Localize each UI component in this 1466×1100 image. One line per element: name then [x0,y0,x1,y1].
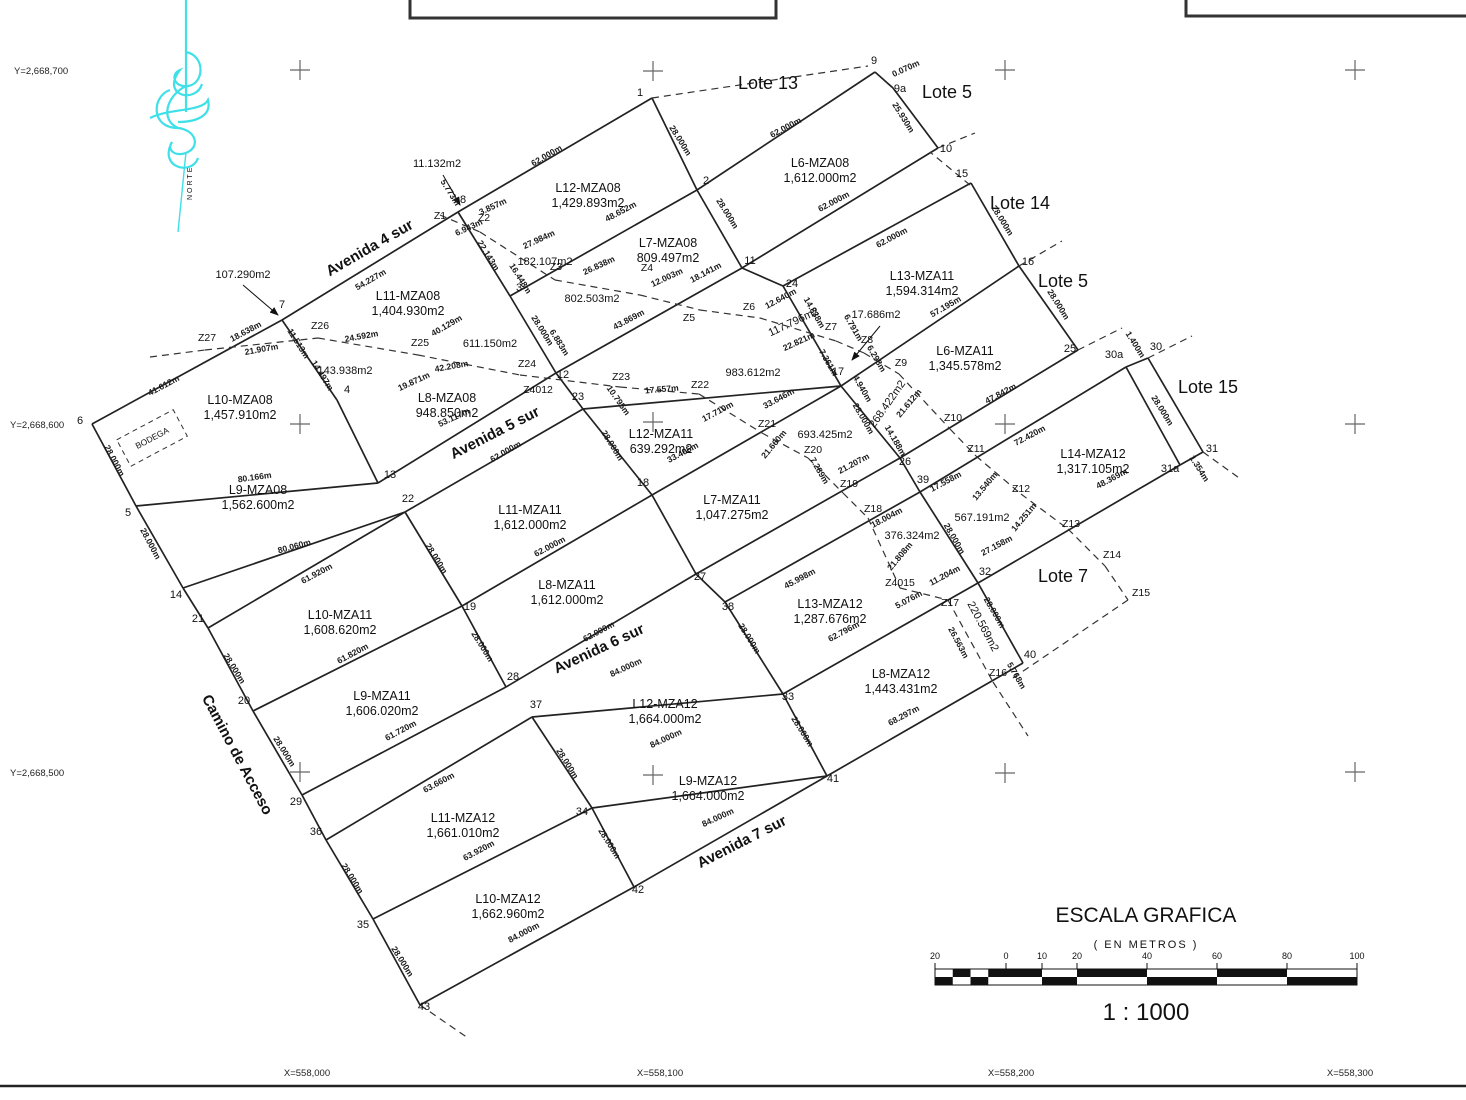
corner-number-label: 43 [418,1001,430,1013]
dimension-label: 25.930m [890,100,917,134]
lot-label: L13-MZA121,287.676m2 [794,597,867,626]
dimension-label: 84.000m [648,726,683,750]
scale-bar-cell [1077,969,1147,977]
corner-number-label: 5 [125,507,131,519]
grid-y-label: Y=2,668,700 [14,66,68,77]
corner-number-label: 37 [530,699,542,711]
lot-label: L8-MZA111,612.000m2 [531,578,604,607]
lot-label: L12-MZA121,664.000m2 [629,697,702,726]
dimension-label: 22.821m [781,329,816,353]
corner-number-label: 14 [170,589,182,601]
area-label: 143.938m2 [317,365,372,377]
lot-label: L7-MZA111,047.275m2 [696,493,769,522]
z-vertex-label: Z2 [478,212,490,224]
scale-tick-label: 100 [1349,951,1364,961]
corner-number-label: 31 [1206,443,1218,455]
corner-number-label: 9 [871,55,877,67]
z-vertex-label: Z22 [691,379,709,391]
dimension-label: 21.660m [759,428,789,461]
scale-bar-cell [1147,977,1217,985]
dimension-label: 47.842m [983,381,1018,406]
north-arrow-icon: NORTE [150,0,209,236]
grid-x-label: X=558,200 [988,1068,1034,1079]
z-vertex-label: Z7 [825,321,837,333]
corner-number-label: 30 [1150,341,1162,353]
corner-number-label: 40 [1024,649,1036,661]
dimension-label: 61.720m [383,718,418,743]
dimension-label: 28.000m [1045,287,1072,321]
area-label: 17.686m2 [852,309,901,321]
corner-number-label: 27 [694,571,706,583]
scale-bar-cell [1287,977,1357,985]
corner-number-label: 15 [956,168,968,180]
dimension-label: 72.420m [1012,423,1047,448]
scale-ratio: 1 : 1000 [1103,999,1190,1026]
scale-bar-cell [971,977,989,985]
corner-number-label: 22 [402,493,414,505]
z-vertex-label: Z11 [967,443,984,455]
z-vertex-label: Z4015 [885,577,915,589]
corner-number-label: 24 [786,278,798,290]
z-vertex-label: Z13 [1062,518,1080,530]
corner-number-label: 9a [894,83,907,95]
dimension-label: 24.592m [344,328,380,344]
scale-tick-label: 60 [1212,951,1222,961]
z-vertex-label: Z1 [434,210,446,222]
parcel-boundary-line [875,72,893,88]
scale-bar-cell [1217,969,1287,977]
dimension-label: 45.998m [782,566,817,591]
parcel-boundary-line [742,268,783,286]
drawing-sheet: NORTE BODEGA 41.612m28.000m18.638m11.513… [0,0,1466,1100]
z-vertex-label: Z21 [758,418,776,430]
title-box-left [410,0,776,18]
z-vertex-label: Z18 [864,503,882,515]
dimension-label: 41.612m [146,373,181,398]
corner-number-label: 8 [460,194,466,206]
z-vertex-label: Z15 [1132,587,1150,599]
scale-tick-label: 0 [1003,951,1008,961]
grid-cross-icon [995,763,1015,783]
z-vertex-label: Z10 [944,412,962,424]
neighbor-lote-label: Lote 5 [1038,271,1088,291]
corner-number-label: 41 [827,773,839,785]
dimension-label: 19.871m [396,369,431,393]
z-vertex-label: Z25 [411,337,429,349]
lot-label: L11-MZA121,661.010m2 [427,811,500,840]
lot-label: L9-MZA081,562.600m2 [222,483,295,512]
dimension-label: 28.000m [221,651,248,685]
z-vertex-label: Z5 [683,312,695,324]
bodega-structure: BODEGA [117,410,188,467]
corner-number-label: 17 [832,366,844,378]
dimension-label: 21.907m [244,341,280,357]
neighbor-lote-labels: Lote 13Lote 5Lote 14Lote 5Lote 15Lote 7 [738,73,1238,586]
affectation-dashed-line [1105,566,1128,600]
scale-tick-label: 80 [1282,951,1292,961]
dimension-label: 10.795m [605,384,633,418]
scale-tick-label: 10 [1037,951,1047,961]
dimension-label: 11.513m [285,327,311,361]
scale-tick-label: 40 [1142,951,1152,961]
corner-number-label: 34 [576,806,588,818]
neighbor-lote-label: Lote 15 [1178,377,1238,397]
area-label: 611.150m2 [463,338,517,350]
dimension-label: 26.838m [581,253,616,277]
corner-number-label: 11 [744,255,755,267]
lot-label: L7-MZA08809.497m2 [637,236,700,265]
corner-number-label: 7 [279,299,285,311]
corner-number-label: 13 [384,469,396,481]
area-label: 983.612m2 [725,367,780,379]
bodega-label: BODEGA [134,425,171,451]
dimension-label: 80.060m [277,537,313,556]
dimension-label: 7.289m [808,455,831,486]
dimension-label: 33.646m [761,386,796,411]
z-vertex-label: Z17 [941,597,959,609]
parcel-boundary-line [337,400,378,483]
grid-y-label: Y=2,668,500 [10,768,64,779]
area-label: 107.290m2 [215,269,270,281]
corner-number-label: 38 [722,601,734,613]
z-vertex-label: Z9 [895,357,907,369]
dimension-label: 28.000m [667,123,694,157]
scale-bar-cell [1042,977,1077,985]
z-vertex-label: Z8 [861,334,873,346]
grid-cross-icon [995,60,1015,80]
parcel-boundary-line [326,717,532,840]
lot-label: L9-MZA121,664.000m2 [672,774,745,803]
lot-label: L11-MZA081,404.930m2 [372,289,445,318]
dimension-label: 62.000m [529,142,564,168]
corner-number-label: 3 [516,282,522,294]
z-vertex-label: Z12 [1012,483,1030,495]
neighbor-lote-label: Lote 13 [738,73,798,93]
lot-label: L9-MZA111,606.020m2 [346,689,419,718]
corner-number-label: 4 [344,384,350,396]
area-label: 802.503m2 [564,293,619,305]
dimension-label: 84.000m [700,805,735,829]
corner-number-label: 33 [782,691,794,703]
dimension-label: 21.808m [885,540,915,573]
dimension-label: 62.000m [768,115,803,140]
dimension-label: 4.940m [851,373,874,404]
corner-number-label: 36 [310,826,322,838]
corner-number-label: 30a [1105,349,1124,361]
grid-coordinate-labels: Y=2,668,700Y=2,668,600Y=2,668,500X=558,0… [10,66,1373,1079]
street-name-label: Avenida 4 sur [323,216,416,280]
dimension-label: 26.563m [946,625,971,660]
lot-label: L11-MZA111,612.000m2 [494,503,567,532]
parcel-lines [92,66,1242,1038]
dimension-label: 28.000m [789,714,816,748]
scale-tick-label: 20 [1072,951,1082,961]
neighbor-lote-label: Lote 14 [990,193,1050,213]
corner-number-label: 23 [572,391,584,403]
lot-label: L14-MZA121,317.105m2 [1057,447,1130,476]
scale-bar-cell [953,969,971,977]
area-label: 376.324m2 [884,530,939,542]
scale-tick-label: 20 [930,951,940,961]
dimension-label: 17.710m [700,399,735,424]
title-box-right [1186,0,1466,16]
corner-number-label: 2 [703,175,709,187]
dimension-label: 5.076m [893,588,924,611]
parcel-boundary-line [652,495,696,574]
corner-number-label: 10 [940,143,952,155]
bodega-outline: BODEGA [117,410,188,467]
z-vertex-label: Z14 [1103,549,1121,561]
dimension-label: 28.000m [736,621,763,655]
parcel-boundary-line [652,98,697,190]
graphic-scale: ESCALA GRAFICA ( EN METROS ) 1 : 1000 20… [930,904,1365,1026]
scale-subtitle: ( EN METROS ) [1094,939,1199,951]
grid-x-label: X=558,300 [1327,1068,1373,1079]
corner-number-label: 26 [899,456,911,468]
dimension-label: 1.354m [1188,453,1212,483]
lot-label: L12-MZA081,429.893m2 [552,181,625,210]
street-name-label: Camino de Acceso [198,692,276,818]
lot-label: L8-MZA121,443.431m2 [865,667,938,696]
dimension-label: 28.000m [339,861,366,895]
dimension-label: 27.158m [979,533,1014,558]
dimension-label: 0.070m [890,57,921,79]
dimension-label: 84.000m [608,655,643,679]
dimension-label: 61.820m [335,641,370,666]
z-vertex-label: Z4 [641,262,653,274]
north-arrow-label: NORTE [187,166,194,200]
grid-cross-icon [1345,762,1365,782]
dimension-label: 28.000m [554,746,581,780]
grid-x-label: X=558,000 [284,1068,330,1079]
z-vertex-label: Z16 [989,667,1007,679]
z-vertex-label: Z19 [840,478,858,490]
dimension-label: 28.000m [596,826,623,860]
lot-label: L13-MZA111,594.314m2 [886,269,959,298]
z-vertex-label: Z24 [518,358,536,370]
lot-label: L10-MZA121,662.960m2 [472,892,545,921]
dimension-label: 28.000m [599,428,626,462]
area-label: 567.191m2 [954,512,1009,524]
scale-title: ESCALA GRAFICA [1056,904,1237,927]
dimension-label: 17.558m [928,469,963,494]
dimension-label: 13.540m [970,470,1000,503]
z-vertex-label: Z6 [743,301,755,313]
corner-number-label: 1 [637,87,643,99]
grid-cross-icon [290,414,310,434]
affectation-dashed-line [993,682,1028,736]
z-vertex-label: Z26 [311,320,329,332]
dimension-label: 28.000m [942,521,968,556]
dimension-label: 21.207m [836,451,871,476]
grid-cross-icon [1345,414,1365,434]
affectation-dashed-line [1068,529,1105,566]
neighbor-lote-label: Lote 7 [1038,566,1088,586]
corner-number-label: 29 [290,796,302,808]
grid-cross-icon [643,61,663,81]
dimension-label: 5.768m [1005,660,1028,691]
dimension-label: 1.400m [1124,329,1148,359]
dimension-label: 14.251m [1009,501,1039,534]
affectation-dashed-line [150,350,205,357]
z-vertex-label: Z20 [804,444,822,456]
corner-number-label: 32 [979,566,991,578]
neighbor-lote-label: Lote 5 [922,82,972,102]
dimension-label: 43.869m [611,307,646,332]
dimension-label: 28.000m [138,526,163,561]
affectation-dashed-line [1078,328,1122,350]
corner-number-label: 6 [77,415,83,427]
corner-number-label: 20 [238,695,250,707]
dimension-label: 62.000m [816,189,851,214]
parcel-boundary-line [556,268,742,373]
scale-bar-cell [935,977,953,985]
dimension-label: 22.143m [475,238,502,272]
parcel-boundary-line [136,506,183,588]
affectation-dashed-line [1010,600,1128,680]
z-vertex-label: Z3 [550,261,562,273]
grid-cross-icon [290,60,310,80]
z-vertex-label: Z23 [612,371,630,383]
lot-label: L6-MZA081,612.000m2 [784,156,857,185]
scale-bar: 2001020406080100 [930,951,1365,985]
dimension-label: 28.000m [469,629,496,663]
corner-number-label: 28 [507,671,519,683]
scale-bar-cell [1006,969,1042,977]
annotation-leader-arrow [243,285,278,315]
grid-cross-icon [643,765,663,785]
area-label: 693.425m2 [797,429,852,441]
corner-number-label: 19 [464,601,476,613]
corner-number-label: 31a [1161,463,1180,475]
dimension-label: 6.298m [865,343,888,374]
grid-y-label: Y=2,668,600 [10,420,64,431]
area-label: 182.107m2 [517,256,572,268]
corner-number-label: 21 [192,613,204,625]
corner-number-label: 39 [917,474,929,486]
grid-cross-icon [995,414,1015,434]
grid-cross-icon [1345,60,1365,80]
area-label: 11.132m2 [413,158,461,170]
lot-label: L8-MZA08948.850m2 [416,391,479,420]
dimension-label: 62.000m [874,225,909,250]
dimension-label: 17.557m [644,383,679,396]
parcel-boundary-line [1126,358,1148,367]
lot-label: L10-MZA111,608.620m2 [304,608,377,637]
parcel-boundary-line [373,919,420,1005]
lot-label: L12-MZA11639.292m2 [629,427,693,456]
corner-number-label: 18 [637,477,649,489]
z-vertex-label: Z4012 [523,384,553,396]
lot-label: L6-MZA111,345.578m2 [929,344,1002,373]
corner-number-label: 25 [1064,343,1076,355]
scale-bar-cell [988,969,1006,977]
dimension-label: 12.003m [649,265,684,289]
z-vertex-label: Z27 [198,332,216,344]
corner-number-label: 16 [1022,256,1034,268]
corner-number-label: 12 [557,369,569,381]
affectation-dashed-line [318,338,418,355]
dimension-label: 28.000m [102,443,127,478]
dimension-label: 42.208m [434,358,470,374]
corner-number-label: 35 [357,919,369,931]
grid-x-label: X=558,100 [637,1068,683,1079]
plat-map: NORTE BODEGA 41.612m28.000m18.638m11.513… [0,0,1466,1100]
dimension-label: 28.000m [423,541,450,575]
dimension-label: 11.204m [927,563,962,588]
dimension-label: 27.984m [521,227,556,251]
corner-number-label: 42 [632,884,644,896]
lot-label: L10-MZA081,457.910m2 [204,393,277,422]
